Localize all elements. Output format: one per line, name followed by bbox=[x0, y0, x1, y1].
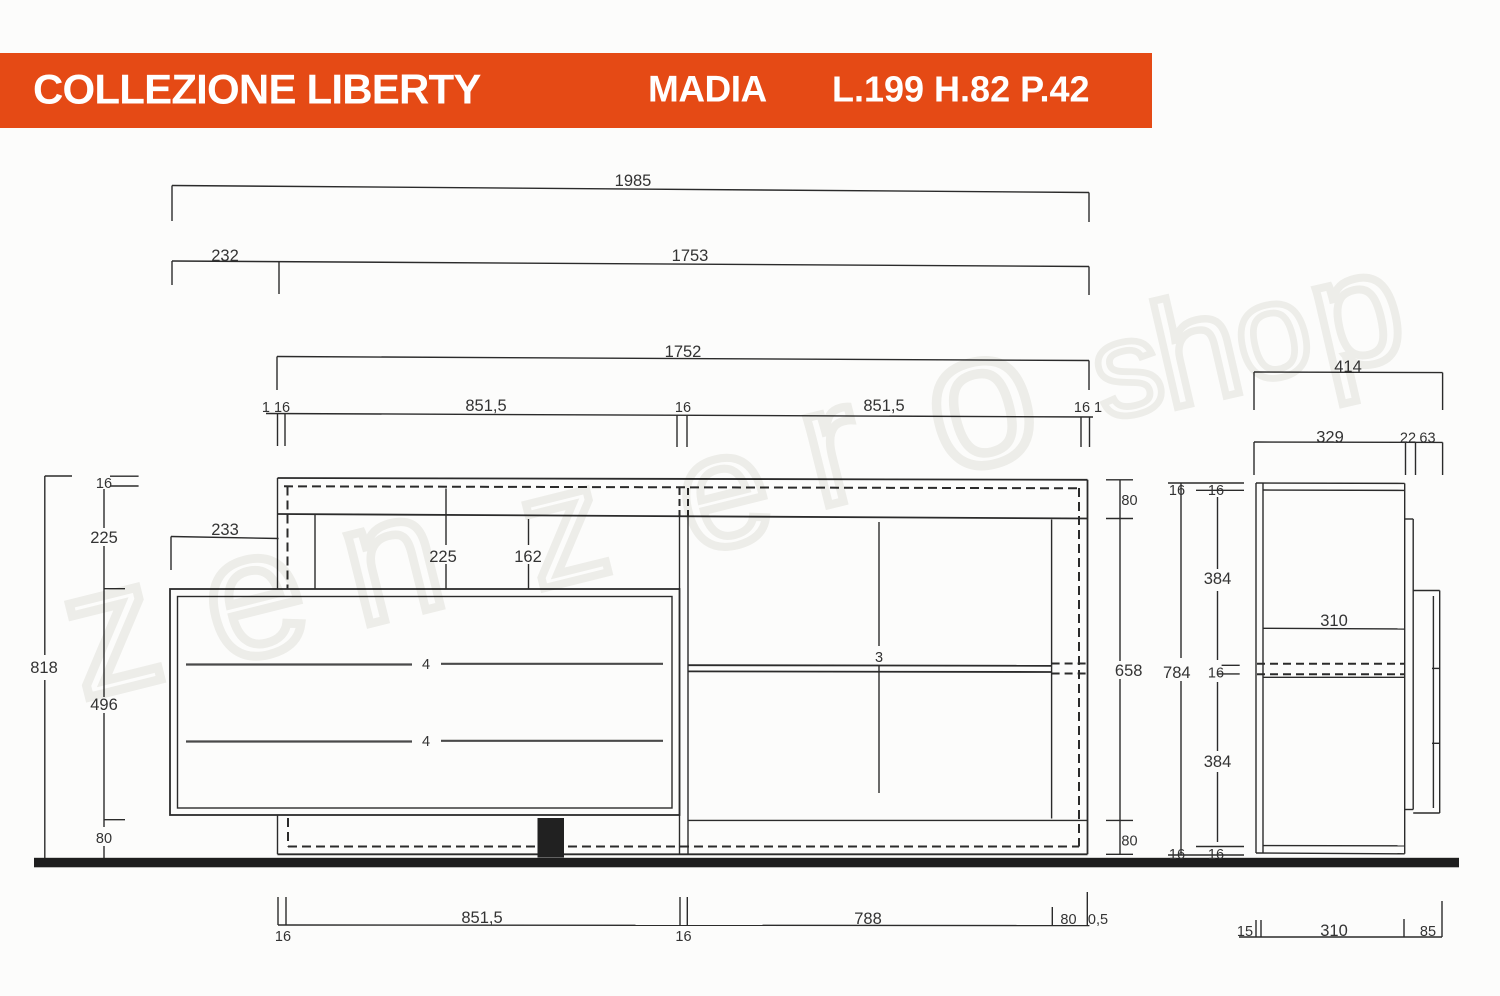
svg-text:1753: 1753 bbox=[672, 247, 709, 265]
svg-text:4: 4 bbox=[422, 657, 430, 673]
svg-text:16: 16 bbox=[1208, 666, 1224, 682]
svg-text:4: 4 bbox=[422, 734, 430, 750]
svg-text:16: 16 bbox=[96, 476, 112, 492]
svg-text:0,5: 0,5 bbox=[1088, 912, 1108, 928]
svg-text:1752: 1752 bbox=[665, 343, 702, 361]
svg-text:80: 80 bbox=[1060, 912, 1076, 928]
svg-text:329: 329 bbox=[1316, 429, 1344, 447]
svg-text:788: 788 bbox=[854, 910, 882, 928]
svg-text:80: 80 bbox=[1121, 834, 1137, 850]
svg-text:232: 232 bbox=[211, 247, 239, 265]
svg-text:1 16: 1 16 bbox=[262, 400, 290, 416]
svg-text:16: 16 bbox=[675, 929, 691, 945]
svg-text:22: 22 bbox=[1400, 431, 1416, 447]
svg-text:851,5: 851,5 bbox=[863, 397, 904, 415]
svg-text:z: z bbox=[43, 520, 179, 737]
svg-text:r: r bbox=[781, 346, 882, 544]
svg-text:384: 384 bbox=[1204, 570, 1232, 588]
svg-text:818: 818 bbox=[30, 659, 58, 677]
svg-text:63: 63 bbox=[1419, 431, 1435, 447]
svg-text:658: 658 bbox=[1115, 662, 1143, 680]
svg-text:3: 3 bbox=[875, 650, 883, 666]
svg-text:e: e bbox=[657, 391, 788, 588]
svg-text:15: 15 bbox=[1237, 924, 1253, 940]
svg-text:16: 16 bbox=[275, 929, 291, 945]
svg-text:310: 310 bbox=[1320, 922, 1348, 940]
svg-text:16: 16 bbox=[1169, 483, 1185, 499]
svg-text:85: 85 bbox=[1420, 924, 1436, 940]
svg-text:16: 16 bbox=[1208, 847, 1224, 863]
svg-text:851,5: 851,5 bbox=[461, 909, 502, 927]
svg-text:851,5: 851,5 bbox=[465, 397, 506, 415]
svg-text:16 1: 16 1 bbox=[1074, 400, 1102, 416]
svg-text:80: 80 bbox=[1121, 493, 1137, 509]
svg-text:16: 16 bbox=[1208, 483, 1224, 499]
svg-text:1985: 1985 bbox=[615, 172, 652, 190]
svg-text:16: 16 bbox=[1169, 847, 1185, 863]
svg-text:80: 80 bbox=[96, 831, 112, 847]
svg-text:310: 310 bbox=[1320, 612, 1348, 630]
svg-text:784: 784 bbox=[1163, 664, 1191, 682]
svg-text:384: 384 bbox=[1204, 753, 1232, 771]
